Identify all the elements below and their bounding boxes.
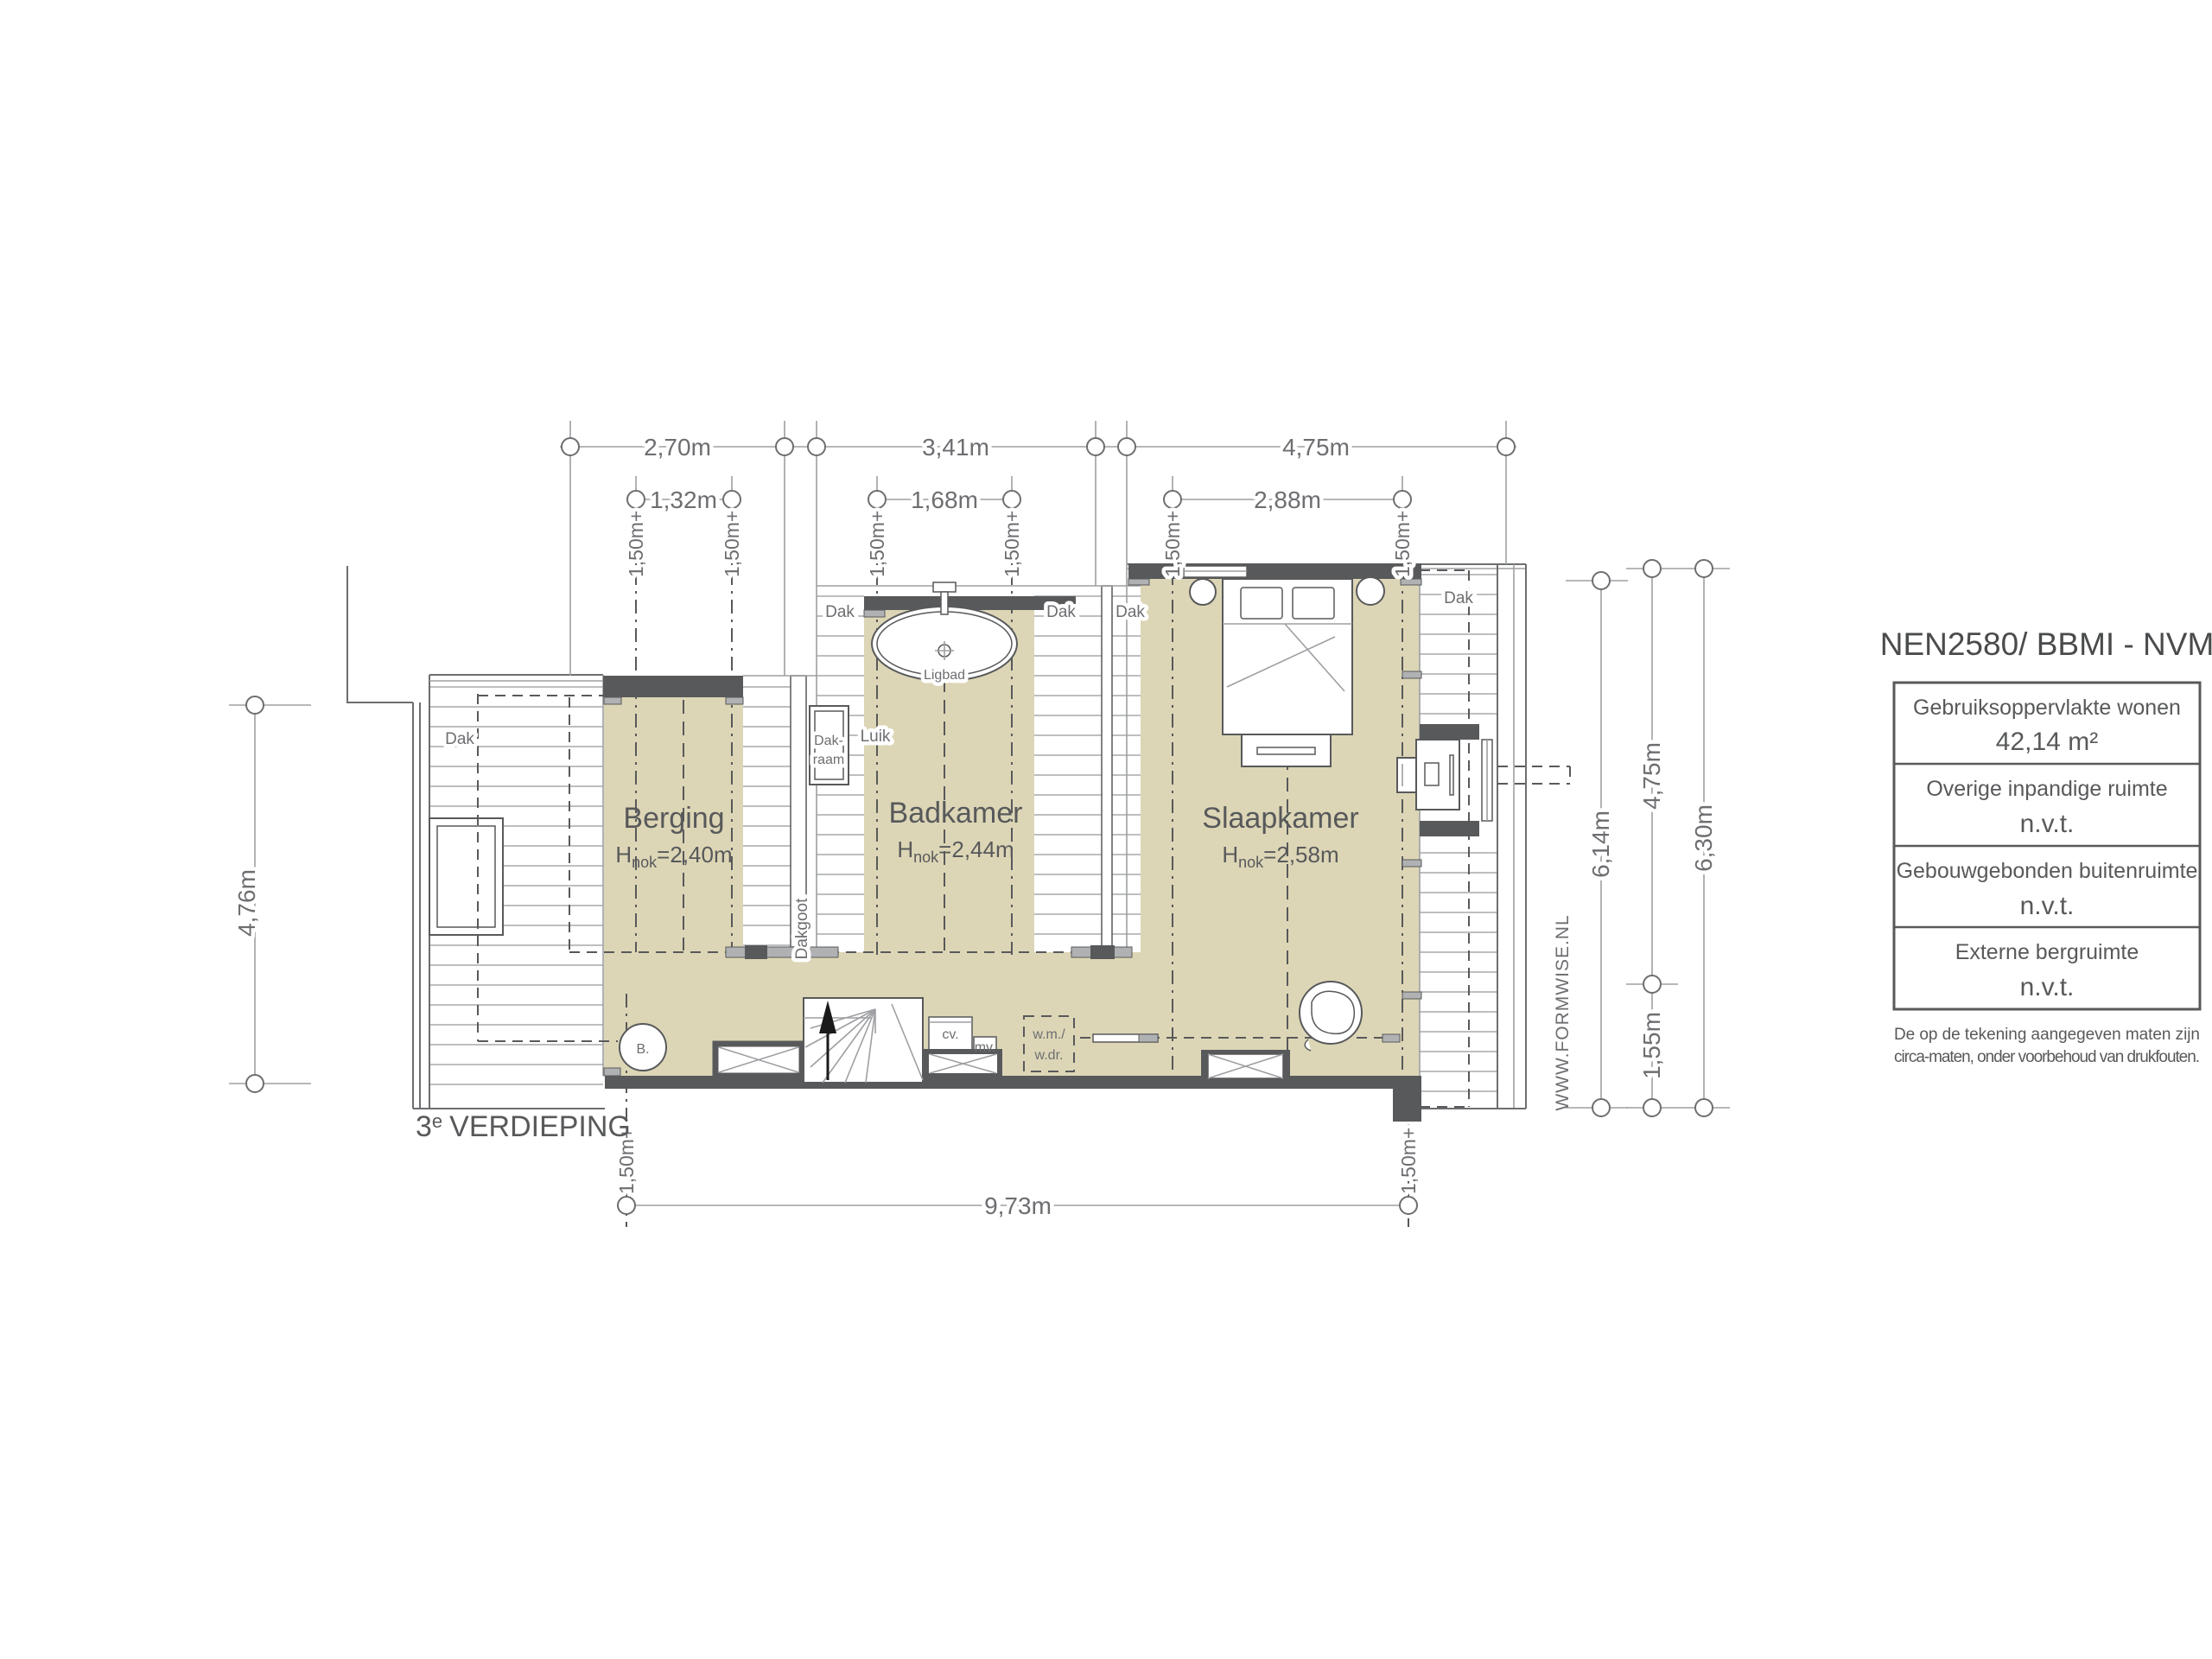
floorplan-page: 2,70m 3,41m 4,75m 1,32m 1,68m 2,88m 1,50… <box>0 0 2212 1659</box>
plus-label-6: 1,50m+ <box>1391 511 1414 577</box>
slaapkamer-wall-stub-right <box>1401 579 1421 585</box>
nightstand-left <box>1190 579 1216 605</box>
dakraam-label-2: raam <box>813 753 844 767</box>
boiler-label: B. <box>636 1042 649 1057</box>
wm-label: w.m./ <box>1032 1027 1065 1042</box>
slaapkamer-wall-stub-left <box>1128 579 1149 585</box>
dim-1-55: 1,55m <box>1638 1012 1665 1079</box>
pillow-left <box>1241 588 1282 619</box>
dormer-wall-top <box>1420 724 1479 740</box>
plus-label-1: 1,50m+ <box>625 511 647 577</box>
dim-4-75-right: 4,75m <box>1638 742 1665 810</box>
monitor <box>1425 763 1439 785</box>
roof-hatch-badkamer-right <box>1034 596 1141 934</box>
floorplan-drawing: 2,70m 3,41m 4,75m 1,32m 1,68m 2,88m 1,50… <box>0 0 2212 1659</box>
gutter-bar-1-dark <box>745 945 767 959</box>
plus-label-5: 1,50m+ <box>1161 511 1184 577</box>
badkamer-wall-stub-left <box>864 610 885 617</box>
dak-label-badkamer-right: Dak <box>1046 603 1076 621</box>
bottom-wall-stub-left <box>604 1068 620 1076</box>
cabinet-1 <box>715 1044 802 1076</box>
legend-disclaimer-2: circa-maten, onder voorbehoud van drukfo… <box>1894 1048 2200 1066</box>
wall-niche-cabinet <box>1201 1050 1290 1089</box>
bottom-wall-right-corner <box>1393 1076 1421 1122</box>
berging-top-wall <box>603 676 743 697</box>
dim-bottom: 9,73m 1,50m+ 1,50m+ <box>615 1128 1420 1219</box>
skylight-inner <box>437 826 495 927</box>
chair-seat <box>1312 991 1354 1033</box>
dim-1-68: 1,68m <box>911 486 978 513</box>
dormer-wall-bottom <box>1420 821 1479 836</box>
legend-row2-label: Overige inpandige ruimte <box>1926 777 2167 801</box>
gutter-bar-2-dark <box>1090 945 1115 959</box>
pillow-right <box>1293 588 1334 619</box>
legend: NEN2580/ BBMI - NVM Gebruiksoppervlakte … <box>1880 626 2212 1066</box>
legend-row4-value: n.v.t. <box>2020 973 2075 1001</box>
legend-disclaimer-1: De op de tekening aangegeven maten zijn <box>1894 1026 2200 1044</box>
roof-hatch-berging-right <box>743 687 791 945</box>
bathtub-faucet-stem <box>941 592 948 614</box>
stairs <box>804 998 923 1083</box>
mv-label: mv. <box>975 1040 996 1055</box>
shelf-gray-end <box>1139 1034 1158 1042</box>
skylight-left-roof <box>429 818 503 935</box>
cv-label: cv. <box>942 1027 958 1042</box>
berging-wall-stub-right <box>726 697 743 704</box>
room-label-berging: Berging <box>623 802 724 835</box>
desk-chair <box>1397 758 1416 792</box>
dim-right: 6,14m 4,75m 1,55m 6,30m <box>1566 560 1730 1116</box>
plus-label-bottom-right: 1,50m+ <box>1397 1128 1420 1194</box>
legend-row1-label: Gebruiksoppervlakte wonen <box>1913 696 2181 720</box>
dim-6-14: 6,14m <box>1587 810 1614 878</box>
legend-row3-value: n.v.t. <box>2020 892 2075 920</box>
dim-4-75-top: 4,75m <box>1282 434 1350 461</box>
dim-9-73: 9,73m <box>984 1192 1052 1219</box>
ligbad-label: Ligbad <box>924 668 965 683</box>
nightstand-right <box>1357 577 1384 605</box>
dim-left: 4,76m <box>229 696 311 1092</box>
plus-label-3: 1,50m+ <box>866 511 888 577</box>
luik-label: Luik <box>861 728 891 746</box>
legend-row1-value: 42,14 m² <box>1996 728 2098 756</box>
dim-3-41: 3,41m <box>922 434 989 461</box>
berging-wall-stub-left <box>604 697 621 704</box>
legend-row4-label: Externe bergruimte <box>1955 940 2139 964</box>
knee-stub-right-2 <box>1402 860 1421 867</box>
dak-label-badkamer-left: Dak <box>825 603 855 621</box>
dim-6-30: 6,30m <box>1690 804 1717 872</box>
bed-bench-inner <box>1257 747 1315 754</box>
dak-label-slaapkamer-left: Dak <box>1116 603 1145 621</box>
dakraam-label-1: Dak- <box>814 734 843 748</box>
dim-1-32: 1,32m <box>650 486 717 513</box>
dim-2-88: 2,88m <box>1254 486 1321 513</box>
plus-label-4: 1,50m+ <box>1001 511 1023 577</box>
watermark: WWW.FORMWISE.NL <box>1553 914 1573 1110</box>
party-wall-notch <box>347 566 413 702</box>
shelf-stub-right <box>1382 1034 1400 1042</box>
legend-row3-label: Gebouwgebonden buitenruimte <box>1897 859 2198 883</box>
dim-4-76: 4,76m <box>233 869 260 937</box>
knee-stub-right-1 <box>1402 671 1421 678</box>
dakgoot-label: Dakgoot <box>793 898 811 959</box>
wdr-label: w.dr. <box>1034 1048 1064 1063</box>
room-label-badkamer: Badkamer <box>889 797 1023 829</box>
plus-label-2: 1,50m+ <box>721 511 743 577</box>
dim-2-70: 2,70m <box>644 434 711 461</box>
monitor-stand <box>1450 755 1453 795</box>
legend-row2-value: n.v.t. <box>2020 810 2075 838</box>
knee-stub-right-3 <box>1402 992 1421 999</box>
gutter-bar-1 <box>726 947 838 957</box>
room-label-slaapkamer: Slaapkamer <box>1202 802 1358 835</box>
floor-title: 3eVERDIEPING <box>416 1110 631 1143</box>
dak-label-right: Dak <box>1444 589 1473 607</box>
dak-label-left: Dak <box>445 730 474 748</box>
legend-title: NEN2580/ BBMI - NVM <box>1880 626 2212 662</box>
gutter-channel-2 <box>1102 586 1112 947</box>
bathtub-faucet-bar <box>933 582 956 592</box>
